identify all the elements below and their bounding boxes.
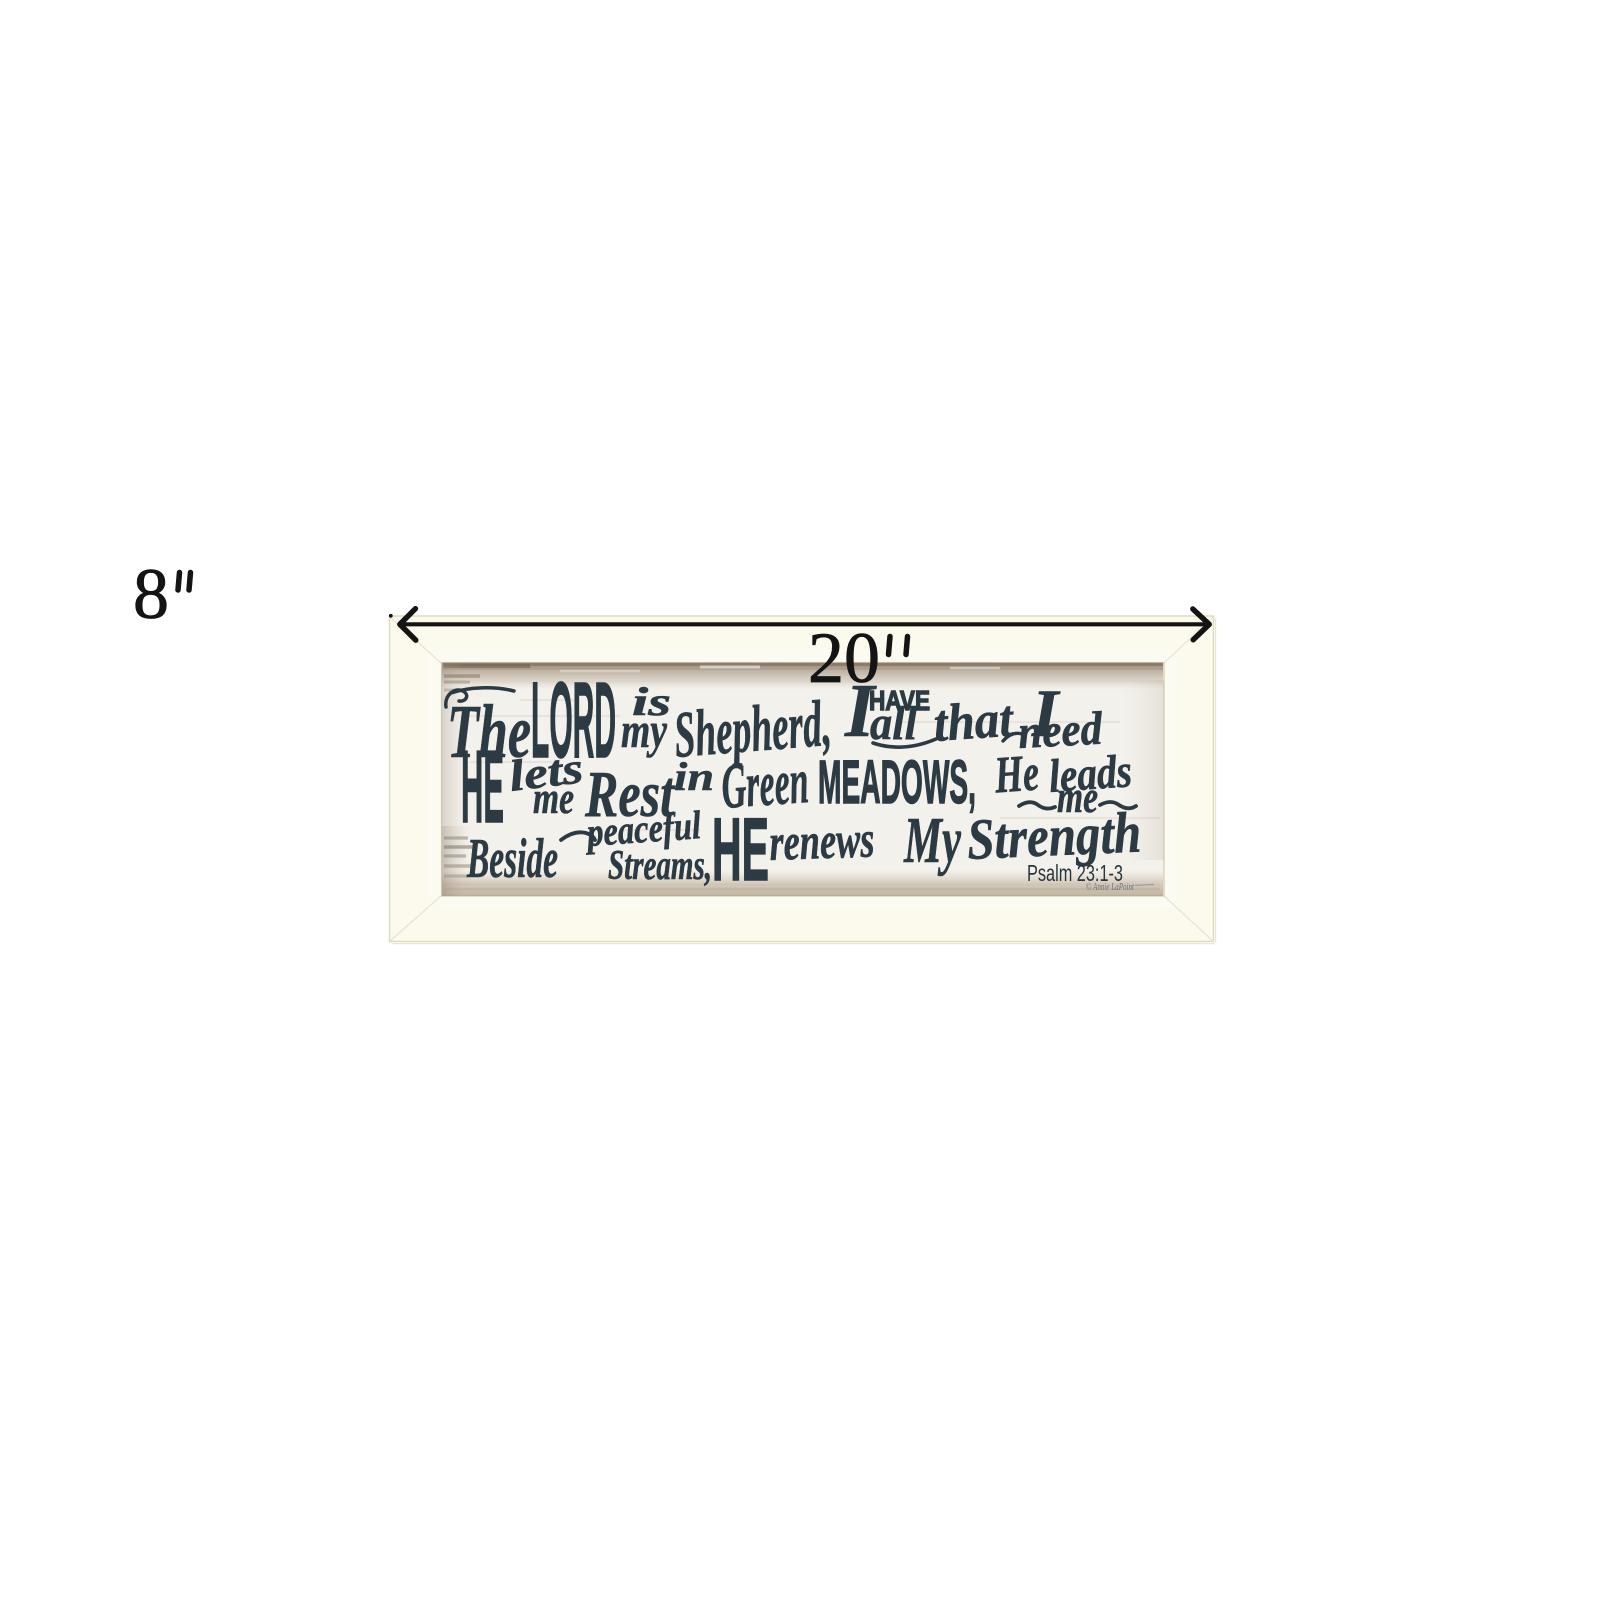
svg-text:that: that xyxy=(932,690,1016,752)
svg-text:My: My xyxy=(903,804,961,877)
svg-text:20: 20 xyxy=(808,618,880,698)
svg-text:me: me xyxy=(533,772,574,823)
svg-text:renews: renews xyxy=(768,811,875,872)
svg-text:© Annie LaPoint: © Annie LaPoint xyxy=(1086,882,1134,893)
svg-text:He: He xyxy=(992,745,1041,805)
svg-text:my: my xyxy=(621,702,668,758)
svg-text:in: in xyxy=(674,754,714,799)
svg-text:HE: HE xyxy=(712,799,769,899)
svg-text:HE: HE xyxy=(461,729,504,844)
svg-text:8: 8 xyxy=(133,554,169,634)
svg-text:all: all xyxy=(870,697,918,750)
svg-text:Streams,: Streams, xyxy=(608,843,712,889)
svg-text:Beside: Beside xyxy=(466,828,558,890)
